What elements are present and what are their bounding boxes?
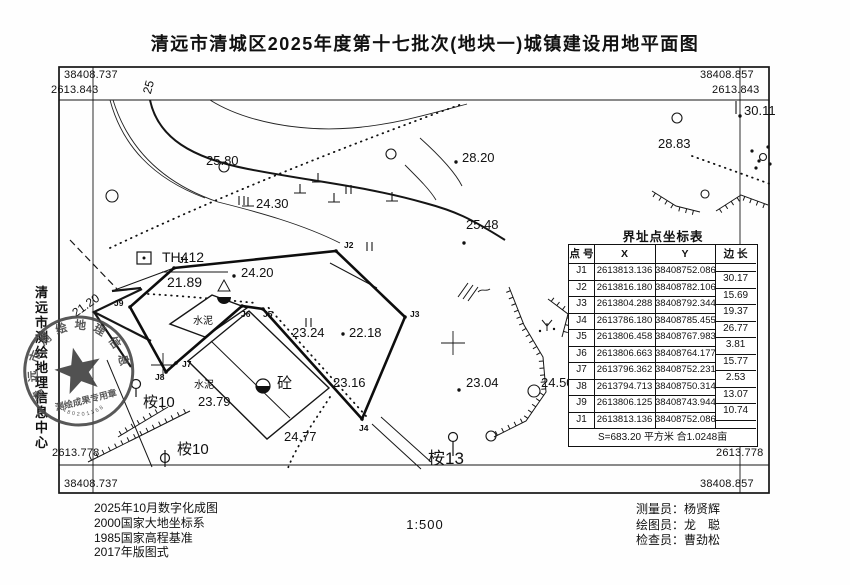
table-header: Y: [655, 245, 715, 263]
point-id-cell: J7: [569, 362, 594, 379]
credit-line: 检查员：曹劲松: [636, 533, 720, 549]
x-coord-cell: 2613806.458: [594, 329, 655, 346]
boundary-coordinate-table: 界址点坐标表 点 号XY边 长J12613813.13638408752.086…: [568, 244, 758, 447]
map-label: 28.83: [658, 137, 691, 150]
point-id-cell: J2: [569, 280, 594, 297]
edge-length-cell: 10.74: [715, 403, 756, 420]
x-coord-cell: 2613804.288: [594, 296, 655, 313]
grid-coord-bottom-right-n: 2613.778: [716, 447, 763, 459]
table-header: 点 号: [569, 245, 594, 263]
credit-line: 绘图员：龙 聪: [636, 518, 720, 534]
map-label: 23.24: [292, 326, 325, 339]
edge-length-cell: 15.77: [715, 354, 756, 371]
y-coord-cell: 38408782.106: [655, 280, 715, 297]
scale-label: 1:500: [385, 517, 465, 532]
map-note-line: 2000国家大地坐标系: [94, 516, 218, 531]
boundary-point-label: J2: [344, 241, 353, 250]
grid-coord-top-right-n: 2613.843: [712, 84, 759, 96]
survey-plan-sheet: 清远市清城区2025年度第十七批次(地块一)城镇建设用地平面图: [0, 0, 850, 585]
map-label: 水泥: [194, 381, 214, 391]
map-note-line: 1985国家高程基准: [94, 531, 218, 546]
edge-length-cell: 3.81: [715, 337, 756, 354]
edge-length-cell: 19.37: [715, 304, 756, 321]
grid-coord-bottom-right-e: 38408.857: [700, 478, 754, 490]
map-label: 25.80: [206, 154, 239, 167]
y-coord-cell: 38408792.344: [655, 296, 715, 313]
margin-org-char: 清: [33, 285, 50, 300]
y-coord-cell: 38408767.983: [655, 329, 715, 346]
point-id-cell: J8: [569, 379, 594, 396]
edge-length-cell: 26.77: [715, 321, 756, 338]
y-coord-cell: 38408752.086: [655, 263, 715, 280]
area-summary-cell: S=683.20 平方米 合1.0248亩: [569, 428, 756, 448]
boundary-point-label: J3: [410, 310, 419, 319]
map-note-line: 2025年10月数字化成图: [94, 501, 218, 516]
edge-length-cell: 15.69: [715, 288, 756, 305]
y-coord-cell: 38408752.231: [655, 362, 715, 379]
map-label: 28.20: [462, 151, 495, 164]
stamp-star: [50, 342, 106, 396]
map-label: 23.16: [333, 376, 366, 389]
map-label: 24.77: [284, 430, 317, 443]
boundary-point-label: J1: [179, 256, 188, 265]
map-notes: 2025年10月数字化成图2000国家大地坐标系1985国家高程基准2017年版…: [94, 501, 218, 560]
map-label: 桉10: [177, 442, 209, 457]
boundary-point-label: J4: [359, 424, 368, 433]
map-label: 21.89: [167, 275, 202, 289]
map-label: 25.48: [466, 218, 499, 231]
point-id-cell: J6: [569, 346, 594, 363]
x-coord-cell: 2613806.663: [594, 346, 655, 363]
map-label: 桉13: [428, 450, 464, 467]
edge-length-cell: 30.17: [715, 271, 756, 288]
map-label: 24.30: [256, 197, 289, 210]
boundary-point-label: J6: [241, 310, 250, 319]
map-label: 25: [141, 79, 156, 95]
credits: 测量员：杨贤辉绘图员：龙 聪检查员：曹劲松: [636, 502, 720, 549]
x-coord-cell: 2613786.180: [594, 313, 655, 330]
official-stamp: 清远市测绘地理信息中心 测绘成果专用章 4480201368: [10, 303, 148, 441]
map-label: 23.79: [198, 395, 231, 408]
point-id-cell: J5: [569, 329, 594, 346]
map-label: 水泥: [193, 317, 213, 327]
table-grid-line: [715, 420, 756, 421]
point-id-cell: J4: [569, 313, 594, 330]
x-coord-cell: 2613794.713: [594, 379, 655, 396]
boundary-point-label: J8: [155, 373, 164, 382]
point-id-cell: J3: [569, 296, 594, 313]
grid-coord-bottom-left-n: 2613.778: [52, 447, 99, 459]
grid-coord-bottom-left-e: 38408.737: [64, 478, 118, 490]
map-label: 23.04: [466, 376, 499, 389]
table-header: X: [594, 245, 655, 263]
grid-coord-top-left-e: 38408.737: [64, 69, 118, 81]
grid-coord-top-right-e: 38408.857: [700, 69, 754, 81]
y-coord-cell: 38408752.086: [655, 412, 715, 429]
x-coord-cell: 2613813.136: [594, 263, 655, 280]
map-label: 24.20: [241, 266, 274, 279]
map-label: 30.11: [744, 104, 776, 117]
x-coord-cell: 2613806.125: [594, 395, 655, 412]
boundary-point-label: J5: [263, 310, 272, 319]
map-label: 砼: [277, 376, 292, 391]
x-coord-cell: 2613796.362: [594, 362, 655, 379]
map-label: 22.18: [349, 326, 382, 339]
edge-length-cell: 13.07: [715, 387, 756, 404]
point-id-cell: J9: [569, 395, 594, 412]
boundary-point-label: J7: [182, 360, 191, 369]
y-coord-cell: 38408785.455: [655, 313, 715, 330]
point-id-cell: J1: [569, 263, 594, 280]
grid-coord-top-left-n: 2613.843: [51, 84, 98, 96]
x-coord-cell: 2613816.180: [594, 280, 655, 297]
map-note-line: 2017年版图式: [94, 545, 218, 560]
table-header: 边 长: [715, 245, 756, 263]
credit-line: 测量员：杨贤辉: [636, 502, 720, 518]
y-coord-cell: 38408743.944: [655, 395, 715, 412]
x-coord-cell: 2613813.136: [594, 412, 655, 429]
point-id-cell: J1: [569, 412, 594, 429]
coord-table-title: 界址点坐标表: [569, 226, 757, 245]
y-coord-cell: 38408764.177: [655, 346, 715, 363]
edge-length-cell: 2.53: [715, 370, 756, 387]
y-coord-cell: 38408750.314: [655, 379, 715, 396]
